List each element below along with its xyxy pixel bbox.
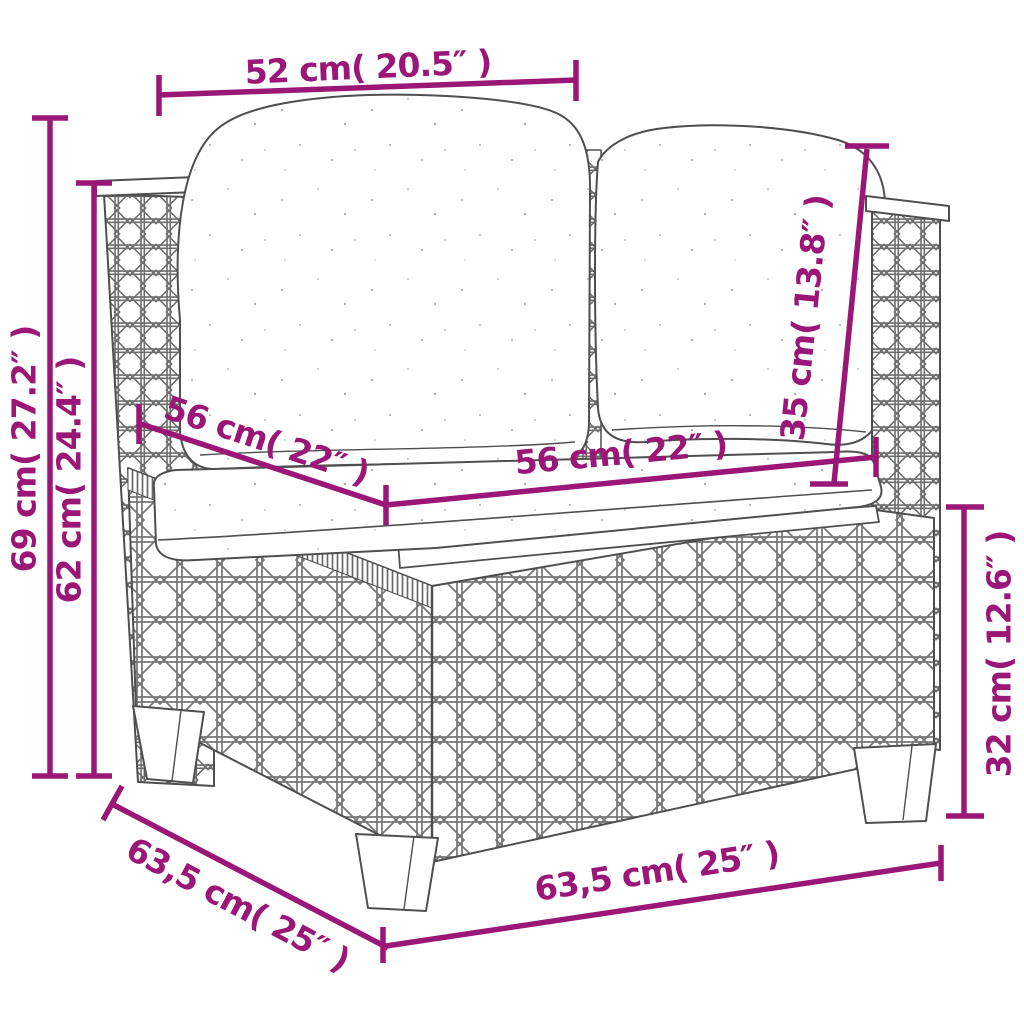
dim-tick [103, 786, 122, 820]
dim-label-bottom-depth: 63,5 cm( 25″ ) [120, 829, 356, 979]
dim-label-total-height: 69 cm( 27.2″ ) [5, 326, 44, 573]
diagram-canvas: 52 cm( 20.5″ ) 69 cm( 27.2″ ) 62 cm( 24.… [0, 0, 1024, 1024]
dim-label-back-height: 62 cm( 24.4″ ) [50, 357, 89, 604]
dimension-diagram: 52 cm( 20.5″ ) 69 cm( 27.2″ ) 62 cm( 24.… [0, 0, 1024, 1024]
dim-label-base-height: 32 cm( 12.6″ ) [980, 531, 1019, 778]
leg-front-center [356, 834, 438, 911]
dim-label-bottom-width: 63,5 cm( 25″ ) [532, 833, 782, 908]
dimension-base-height [946, 507, 984, 816]
base-right-face-weave [432, 510, 934, 862]
leg-right [854, 744, 936, 823]
